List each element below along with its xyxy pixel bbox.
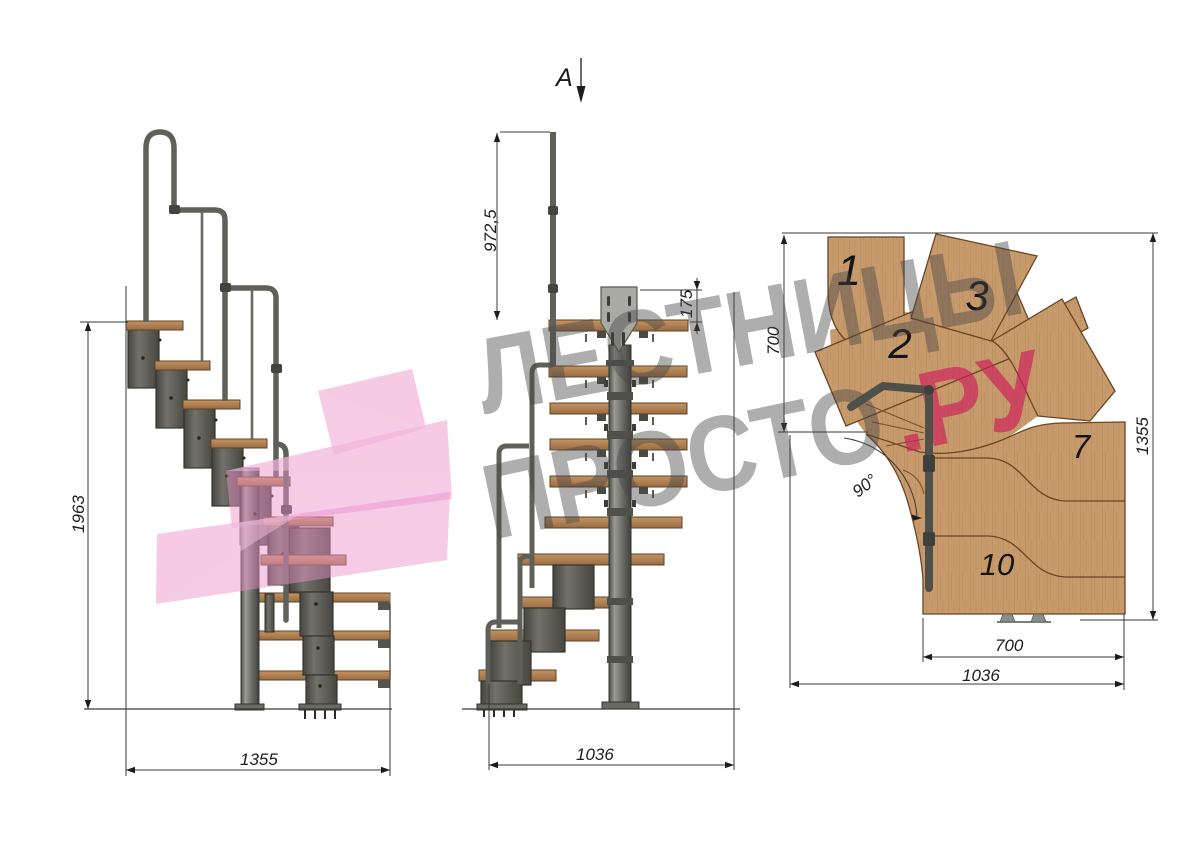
svg-text:1963: 1963 — [69, 495, 88, 533]
svg-text:7: 7 — [1072, 428, 1092, 465]
svg-text:A: A — [554, 64, 573, 92]
svg-text:1355: 1355 — [240, 750, 278, 769]
svg-text:1036: 1036 — [576, 745, 614, 764]
svg-text:1355: 1355 — [1133, 417, 1152, 455]
svg-text:700: 700 — [995, 636, 1024, 655]
svg-text:10: 10 — [980, 547, 1014, 582]
svg-text:972,5: 972,5 — [481, 209, 500, 252]
svg-text:1036: 1036 — [962, 666, 1000, 685]
